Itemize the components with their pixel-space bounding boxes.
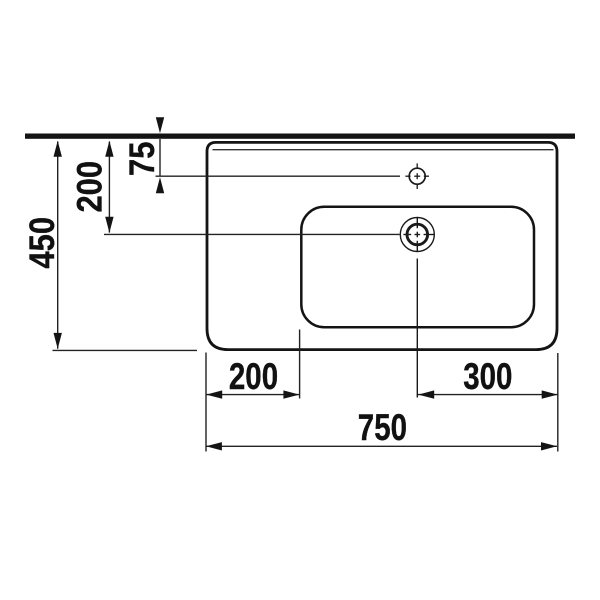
svg-text:200: 200 [229, 357, 278, 398]
svg-text:450: 450 [23, 217, 62, 269]
svg-text:750: 750 [358, 408, 407, 449]
svg-text:300: 300 [463, 357, 512, 398]
svg-text:75: 75 [123, 142, 162, 176]
svg-text:200: 200 [70, 161, 109, 213]
